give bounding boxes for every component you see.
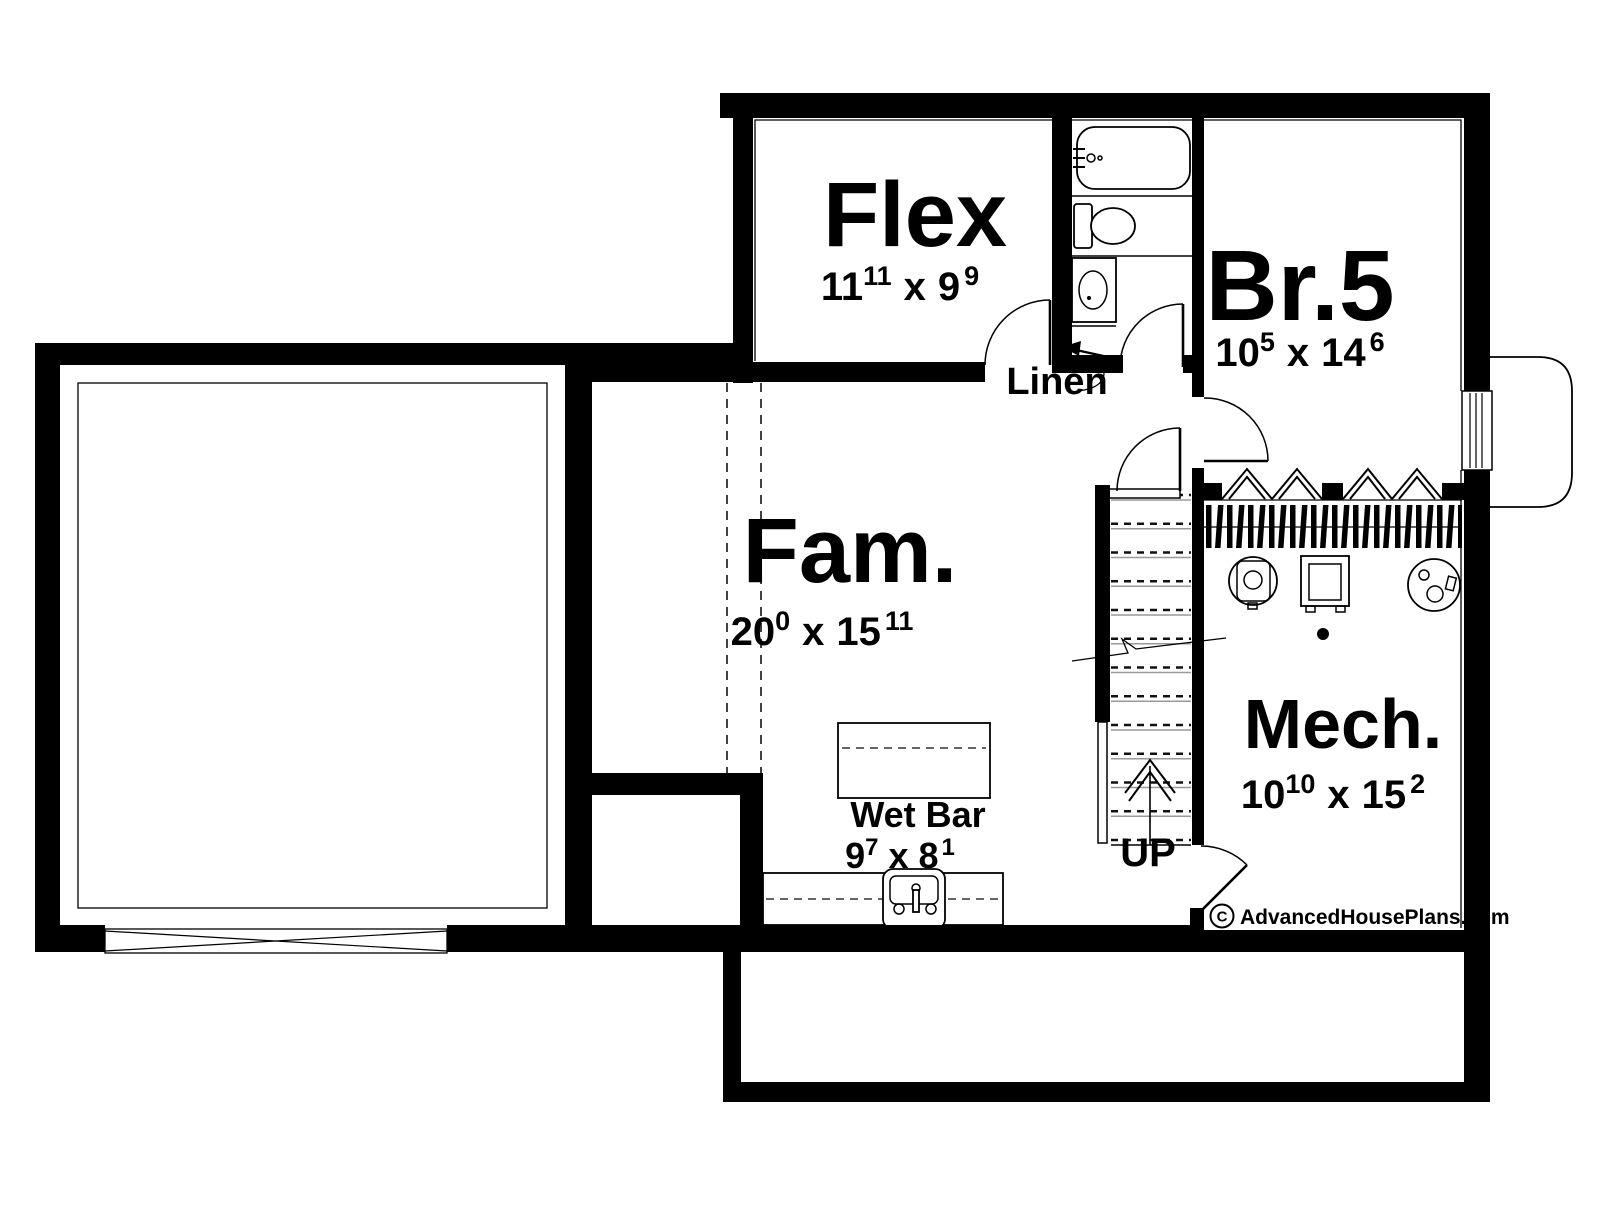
- mech-label: Mech.: [1244, 685, 1442, 763]
- wet-bar-island: [838, 723, 990, 798]
- wetbar-label: Wet Bar: [850, 794, 985, 835]
- toilet-fixture: [1074, 204, 1135, 248]
- sump-pump-fixture: [1408, 559, 1460, 611]
- wetbar-dimensions: 97x81: [845, 834, 955, 876]
- stair-landing-rail: [1108, 489, 1180, 498]
- floor-drain: [1317, 628, 1329, 640]
- room-flex: Flex 1111x99: [821, 164, 1007, 309]
- br5-label: Br.5: [1205, 230, 1394, 342]
- vanity-sink-fixture: [1072, 258, 1116, 322]
- wet-bar-sink-fixture: [883, 869, 945, 929]
- copyright-symbol: C: [1217, 909, 1228, 926]
- floor-plan-svg: Flex 1111x99 Br.5 105x146 Fam. 200x1511 …: [0, 0, 1600, 1200]
- bathtub-fixture: [1077, 127, 1190, 189]
- up-label: UP: [1120, 831, 1176, 875]
- watermark: C AdvancedHousePlans.com: [1211, 905, 1510, 930]
- room-mech: Mech. 1010x152: [1241, 685, 1442, 817]
- linen-label: Linen: [1006, 361, 1107, 403]
- br5-dimensions: 105x146: [1215, 327, 1384, 375]
- watermark-site: AdvancedHousePlans.com: [1240, 906, 1510, 929]
- stair-rail-wall: [1098, 722, 1107, 843]
- fam-label: Fam.: [743, 500, 958, 602]
- flex-label: Flex: [823, 164, 1007, 266]
- floor-plan-page: Flex 1111x99 Br.5 105x146 Fam. 200x1511 …: [0, 0, 1600, 1200]
- furnace-fixture: [1301, 556, 1349, 612]
- garage-door-icon: [105, 929, 447, 953]
- mech-dimensions: 1010x152: [1241, 769, 1425, 817]
